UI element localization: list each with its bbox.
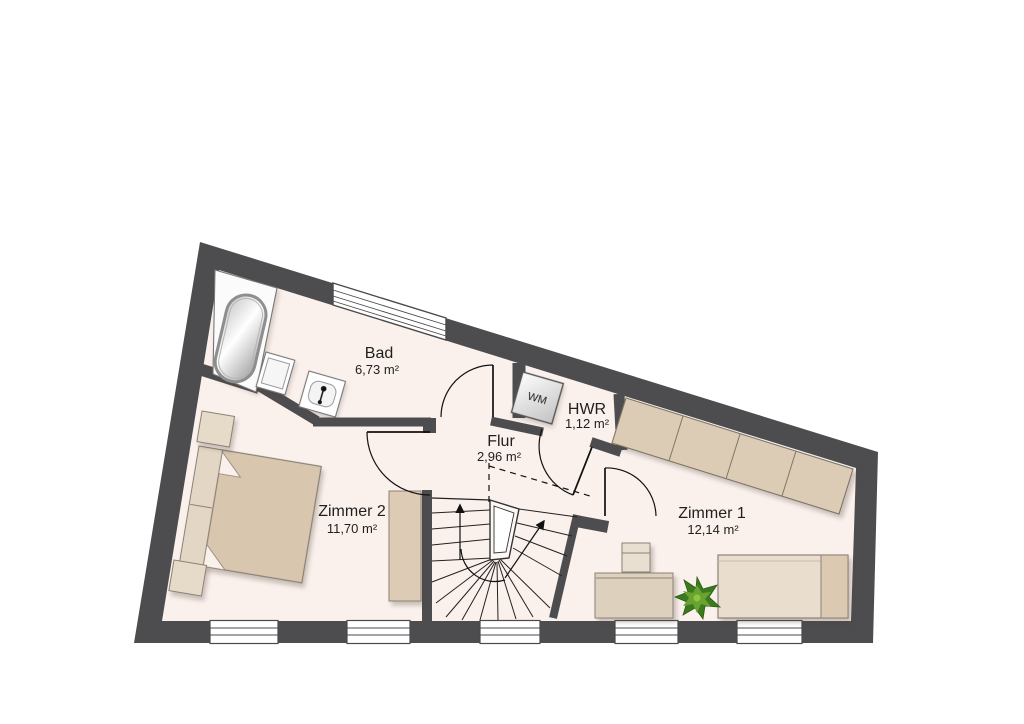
label-flur-area: 2,96 m² <box>477 449 522 464</box>
dresser-zimmer2 <box>389 491 421 601</box>
window-bottom-5 <box>737 621 802 644</box>
label-zimmer1-area: 12,14 m² <box>687 522 739 537</box>
window-bottom-4 <box>615 621 678 644</box>
label-hwr-area: 1,12 m² <box>565 416 610 431</box>
nightstand-top <box>197 411 235 447</box>
label-zimmer1-name: Zimmer 1 <box>678 505 746 522</box>
label-zimmer2-area: 11,70 m² <box>327 521 378 536</box>
label-bad-area: 6,73 m² <box>355 362 400 377</box>
plant-center <box>694 595 701 602</box>
label-zimmer2-name: Zimmer 2 <box>318 503 386 520</box>
desk-zimmer1 <box>595 573 673 618</box>
window-bottom-2 <box>347 621 410 644</box>
bed-single-zimmer1 <box>718 555 848 618</box>
floor-plan-page: WM <box>0 0 1024 724</box>
window-bottom-3 <box>480 621 540 644</box>
window-bottom-1 <box>210 621 278 644</box>
floor-plan-svg: WM <box>0 0 1024 724</box>
label-bad-name: Bad <box>365 345 393 362</box>
nightstand-bottom <box>169 560 207 596</box>
chair-zimmer1 <box>622 543 650 572</box>
label-flur-name: Flur <box>487 433 515 450</box>
bed-double-zimmer2 <box>180 446 322 583</box>
